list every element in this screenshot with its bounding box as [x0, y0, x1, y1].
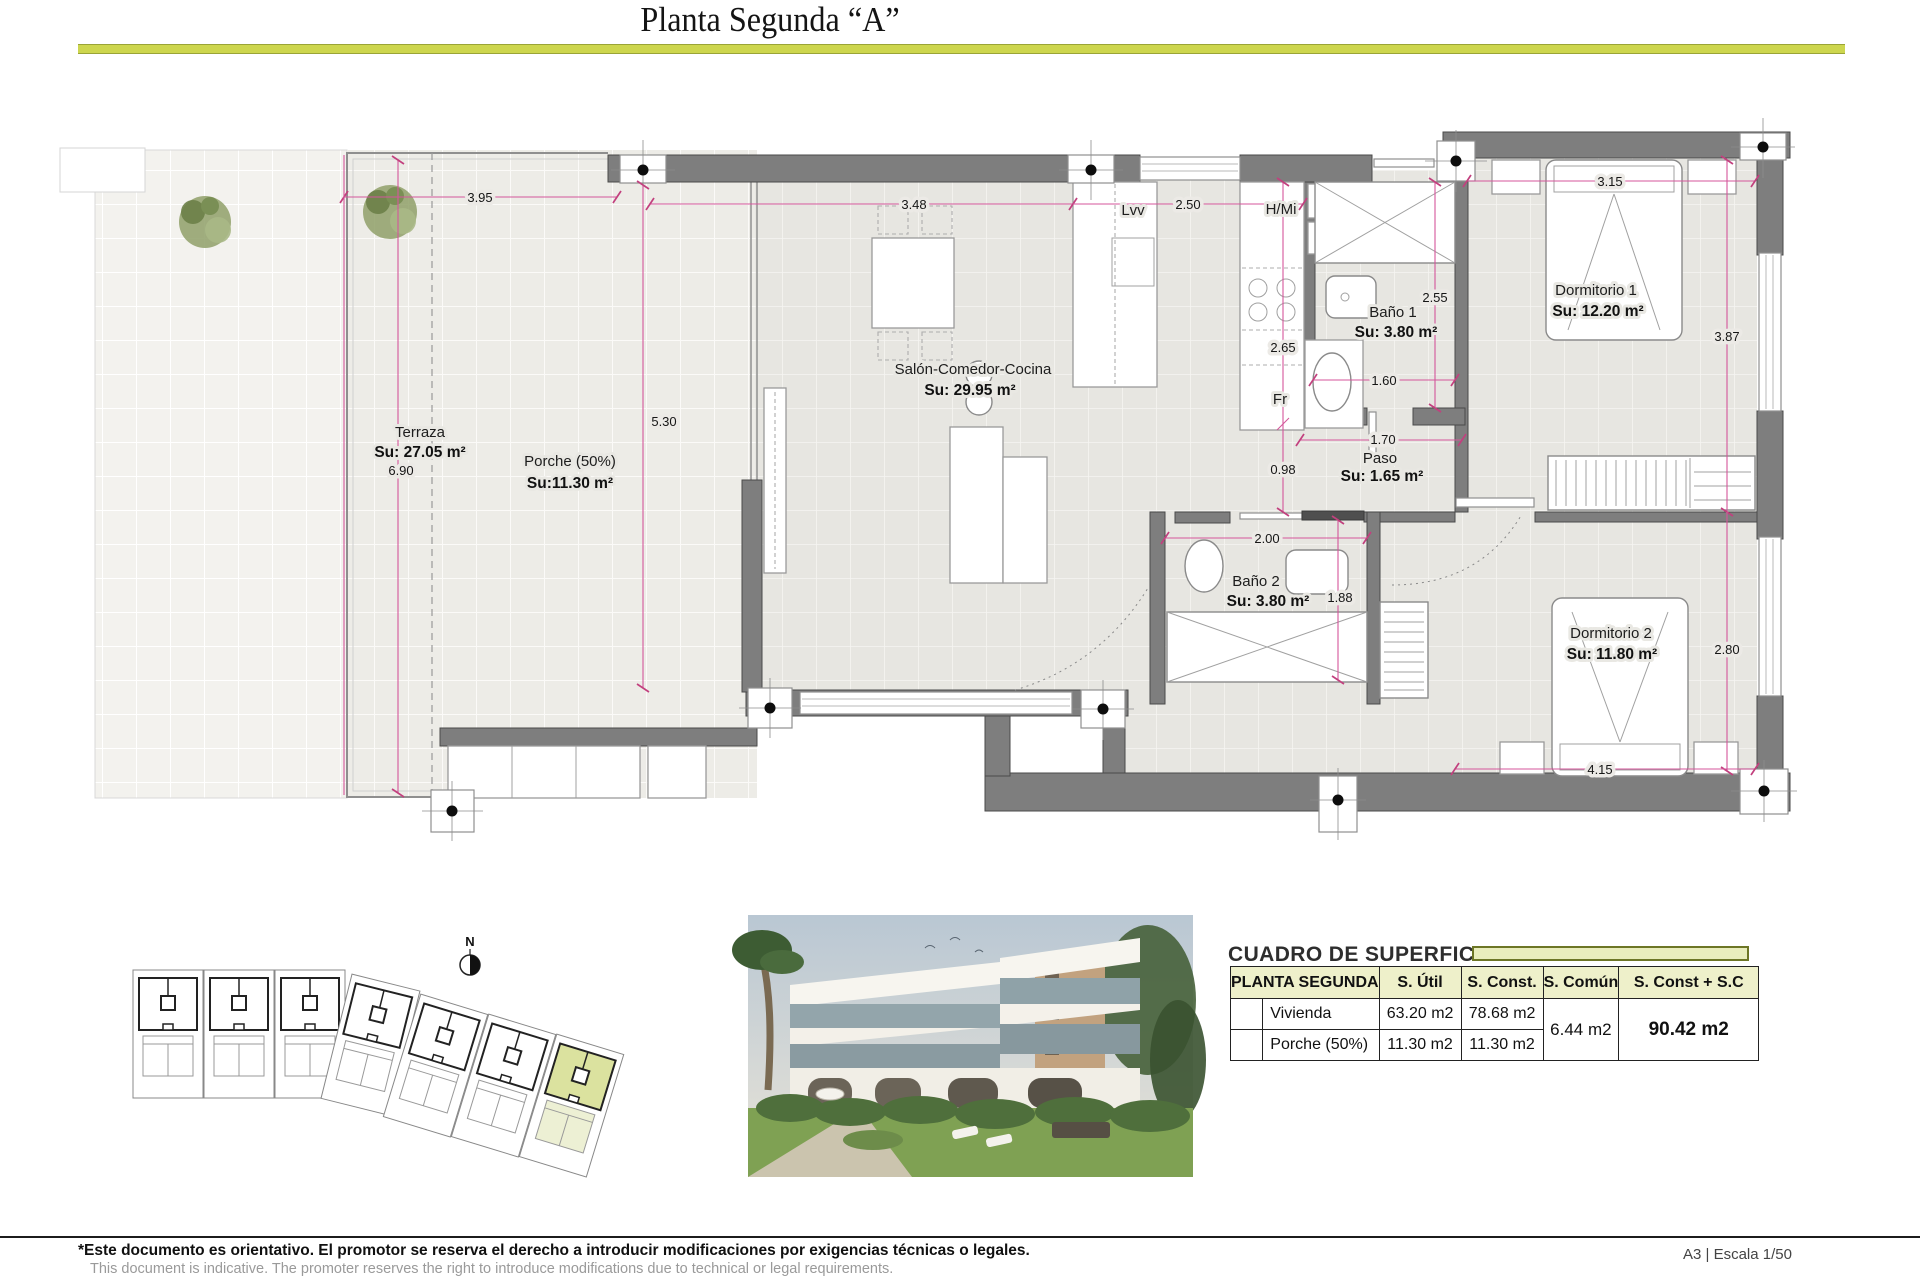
dim-label: 2.55: [1422, 290, 1447, 305]
dim-label: 1.70: [1370, 432, 1395, 447]
floor-plan-drawing: 3.95 3.48 2.50 6.90 5.30 2.65 0.98 2.55 …: [0, 0, 1920, 1280]
terrace-tree: [363, 185, 417, 239]
dim-label: 1.88: [1327, 590, 1352, 605]
dim-label: 4.15: [1587, 762, 1612, 777]
dim-label: 2.50: [1175, 197, 1200, 212]
disclaimer-spanish: *Este documento es orientativo. El promo…: [78, 1242, 1030, 1260]
building-render-image: [732, 915, 1206, 1177]
surfaces-table-title: CUADRO DE SUPERFICIES: [1228, 943, 1509, 967]
room-label-dorm2: Dormitorio 2: [1570, 625, 1652, 642]
room-area-bano1: Su: 3.80 m²: [1355, 324, 1438, 341]
row-label: Porche (50%): [1263, 1030, 1379, 1061]
room-area-dorm2: Su: 11.80 m²: [1567, 646, 1657, 663]
room-label-salon: Salón-Comedor-Cocina: [895, 361, 1052, 378]
row-label: Vivienda: [1263, 999, 1379, 1030]
dim-label: 1.60: [1371, 373, 1396, 388]
empty-cell: [1231, 1030, 1263, 1061]
room-label-bano2: Baño 2: [1232, 573, 1280, 590]
site-plan: [133, 970, 624, 1177]
room-area-terraza: Su: 27.05 m²: [374, 444, 465, 461]
disclaimer-english: This document is indicative. The promote…: [90, 1261, 893, 1277]
dim-label: 3.15: [1597, 174, 1622, 189]
empty-cell: [1231, 999, 1263, 1030]
dim-label: 2.65: [1270, 340, 1295, 355]
room-area-dorm1: Su: 12.20 m²: [1552, 303, 1643, 320]
footer-divider: [0, 1236, 1920, 1238]
room-label-dorm1: Dormitorio 1: [1555, 282, 1637, 299]
appliance-label-fridge: Fr: [1273, 391, 1287, 408]
col-header-const: S. Const.: [1461, 967, 1543, 999]
dim-label: 2.00: [1254, 531, 1279, 546]
comun-value: 6.44 m2: [1543, 999, 1619, 1061]
total-value: 90.42 m2: [1619, 999, 1759, 1061]
col-header-total: S. Const + S.C: [1619, 967, 1759, 999]
room-label-terraza: Terraza: [395, 424, 446, 441]
col-header-util: S. Útil: [1379, 967, 1461, 999]
dim-label: 3.95: [467, 190, 492, 205]
dim-label: 0.98: [1270, 462, 1295, 477]
col-header-comun: S. Común: [1543, 967, 1619, 999]
room-label-paso: Paso: [1363, 450, 1397, 467]
col-header-planta: PLANTA SEGUNDA: [1231, 967, 1380, 999]
surfaces-row-vivienda: Vivienda 63.20 m2 78.68 m2 6.44 m2 90.42…: [1231, 999, 1759, 1030]
dim-label: 5.30: [651, 414, 676, 429]
dim-label: 6.90: [388, 463, 413, 478]
surfaces-header-row: PLANTA SEGUNDA S. Útil S. Const. S. Comú…: [1231, 967, 1759, 999]
dim-label: 3.48: [901, 197, 926, 212]
north-compass: N: [460, 934, 480, 975]
util-value: 63.20 m2: [1379, 999, 1461, 1030]
util-value: 11.30 m2: [1379, 1030, 1461, 1061]
compass-label: N: [465, 934, 474, 949]
appliance-label-oven-micro: H/Mi: [1266, 201, 1297, 218]
room-area-paso: Su: 1.65 m²: [1341, 468, 1424, 485]
surfaces-table: PLANTA SEGUNDA S. Útil S. Const. S. Comú…: [1230, 966, 1759, 1061]
const-value: 78.68 m2: [1461, 999, 1543, 1030]
dim-label: 3.87: [1714, 329, 1739, 344]
appliance-label-dishwasher: Lvv: [1121, 202, 1145, 219]
room-label-porche: Porche (50%): [524, 453, 616, 470]
dim-label: 2.80: [1714, 642, 1739, 657]
room-area-salon: Su: 29.95 m²: [924, 382, 1015, 399]
room-area-porche: Su:11.30 m²: [527, 475, 613, 492]
room-area-bano2: Su: 3.80 m²: [1227, 593, 1310, 610]
sheet-scale-label: A3 | Escala 1/50: [1683, 1246, 1792, 1263]
terrace-tree: [179, 196, 231, 248]
room-label-bano1: Baño 1: [1369, 304, 1417, 321]
const-value: 11.30 m2: [1461, 1030, 1543, 1061]
surfaces-title-bar: [1472, 946, 1749, 961]
